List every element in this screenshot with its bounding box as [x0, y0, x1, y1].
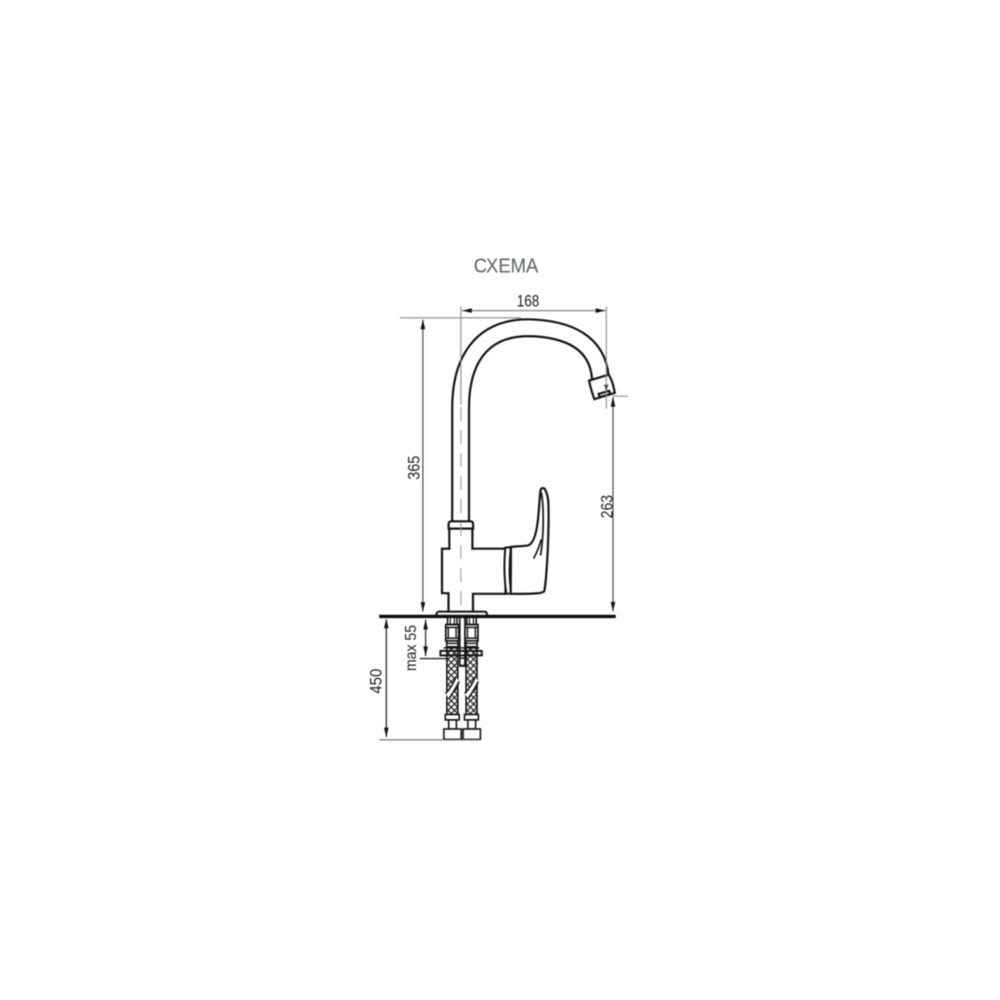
svg-text:365: 365 [405, 456, 423, 480]
svg-text:max 55: max 55 [403, 625, 420, 671]
svg-text:СХЕМА: СХЕМА [474, 256, 539, 278]
svg-text:263: 263 [598, 495, 616, 518]
svg-text:450: 450 [367, 669, 385, 694]
svg-text:168: 168 [517, 292, 540, 310]
